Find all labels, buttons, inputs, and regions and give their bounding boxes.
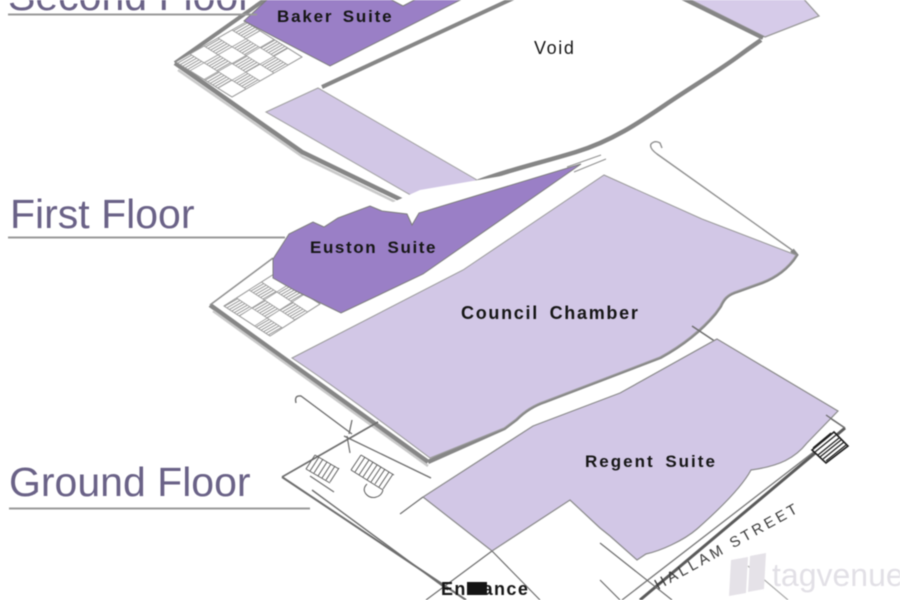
svg-text:Euston Suite: Euston Suite [310,238,437,257]
svg-text:First Floor: First Floor [10,191,195,237]
svg-text:Ground Floor: Ground Floor [9,459,251,505]
svg-text:tagvenue: tagvenue [772,557,900,593]
svg-text:Baker Suite: Baker Suite [277,7,393,26]
svg-text:Second Floor: Second Floor [8,0,252,19]
svg-text:Council Chamber: Council Chamber [461,303,640,323]
svg-text:Regent Suite: Regent Suite [585,452,717,471]
svg-text:Void: Void [534,38,575,58]
